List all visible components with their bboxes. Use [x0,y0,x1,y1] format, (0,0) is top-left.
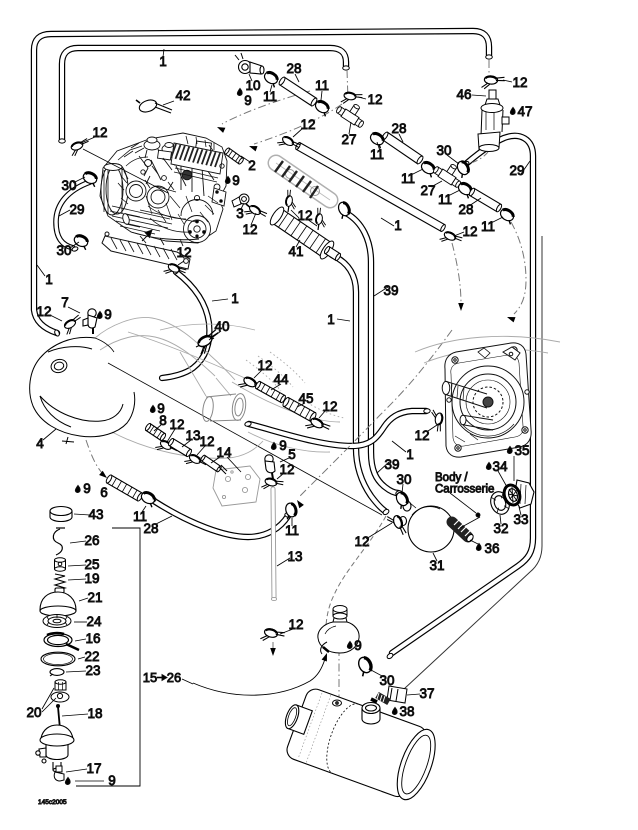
svg-text:14: 14 [216,445,232,460]
svg-text:28: 28 [458,202,473,217]
svg-text:30: 30 [61,178,76,193]
svg-text:39: 39 [384,457,399,472]
svg-text:26: 26 [84,533,99,548]
svg-text:11: 11 [481,219,495,234]
svg-text:12: 12 [36,304,51,319]
svg-text:12: 12 [354,534,369,549]
svg-text:42: 42 [175,88,190,103]
svg-text:11: 11 [315,78,329,93]
svg-text:11: 11 [285,523,299,538]
svg-text:12: 12 [322,399,337,414]
svg-text:28: 28 [391,121,406,136]
svg-text:9: 9 [104,307,112,322]
svg-text:39: 39 [383,283,398,298]
svg-text:47: 47 [517,104,532,119]
svg-text:1: 1 [159,54,167,69]
svg-text:36: 36 [484,541,499,556]
svg-text:11: 11 [370,147,384,162]
svg-text:1: 1 [394,218,402,233]
svg-text:11: 11 [401,171,415,186]
svg-text:1: 1 [231,291,239,306]
svg-text:12: 12 [242,222,257,237]
svg-text:11: 11 [263,89,277,104]
svg-text:1: 1 [327,312,335,327]
svg-text:12: 12 [300,117,315,132]
svg-text:9: 9 [279,438,287,453]
svg-text:18: 18 [87,706,102,721]
svg-text:8: 8 [159,413,167,428]
svg-text:9: 9 [108,773,116,788]
svg-text:33: 33 [513,512,528,527]
svg-text:16: 16 [85,631,100,646]
svg-text:29: 29 [509,163,524,178]
svg-text:Body /: Body / [435,472,468,484]
svg-text:34: 34 [492,459,508,474]
svg-text:12: 12 [199,434,214,449]
svg-text:12: 12 [279,462,294,477]
svg-text:29: 29 [69,202,84,217]
svg-text:4: 4 [36,436,44,451]
svg-text:11: 11 [438,192,452,207]
svg-text:9: 9 [232,173,240,188]
svg-text:28: 28 [286,61,301,76]
svg-text:30: 30 [436,143,451,158]
svg-text:12: 12 [297,208,312,223]
svg-text:27: 27 [341,132,356,147]
svg-text:17: 17 [86,761,101,776]
svg-text:31: 31 [429,558,444,573]
svg-text:10: 10 [245,78,260,93]
svg-text:12: 12 [169,417,184,432]
svg-text:24: 24 [86,614,102,629]
svg-text:12: 12 [288,617,303,632]
svg-text:12: 12 [414,428,429,443]
svg-text:12: 12 [257,358,272,373]
svg-text:7: 7 [61,295,69,310]
svg-text:12: 12 [176,245,191,260]
svg-text:22: 22 [84,649,99,664]
svg-text:145c2005: 145c2005 [38,799,67,806]
svg-text:19: 19 [84,571,99,586]
svg-text:41: 41 [288,244,303,259]
svg-text:30: 30 [56,243,71,258]
svg-text:27: 27 [420,183,435,198]
svg-text:12: 12 [92,125,107,140]
svg-text:35: 35 [514,443,529,458]
svg-text:38: 38 [399,704,414,719]
svg-text:15: 15 [143,670,157,685]
svg-text:12: 12 [367,92,382,107]
svg-text:25: 25 [84,557,99,572]
svg-text:13: 13 [287,549,302,564]
svg-text:45: 45 [298,391,313,406]
svg-text:12: 12 [462,224,477,239]
svg-text:37: 37 [419,686,434,701]
svg-text:30: 30 [396,472,411,487]
svg-text:3: 3 [236,206,244,221]
svg-text:9: 9 [354,638,362,653]
svg-text:26: 26 [167,670,181,685]
svg-text:9: 9 [244,93,252,108]
svg-text:23: 23 [85,663,100,678]
svg-text:20: 20 [26,705,41,720]
svg-text:13: 13 [185,428,200,443]
svg-text:Carrosserie: Carrosserie [435,484,494,496]
svg-text:21: 21 [87,590,102,605]
svg-text:9: 9 [83,481,91,496]
svg-text:30: 30 [379,673,394,688]
svg-text:44: 44 [273,372,289,387]
svg-text:2: 2 [248,158,256,173]
svg-text:1: 1 [45,272,53,287]
svg-text:46: 46 [456,87,471,102]
svg-text:1: 1 [406,447,414,462]
svg-text:6: 6 [100,485,108,500]
svg-text:32: 32 [493,521,508,536]
svg-text:43: 43 [88,507,103,522]
svg-text:12: 12 [512,75,527,90]
svg-text:40: 40 [214,319,229,334]
svg-text:28: 28 [143,521,158,536]
svg-text:5: 5 [288,447,296,462]
